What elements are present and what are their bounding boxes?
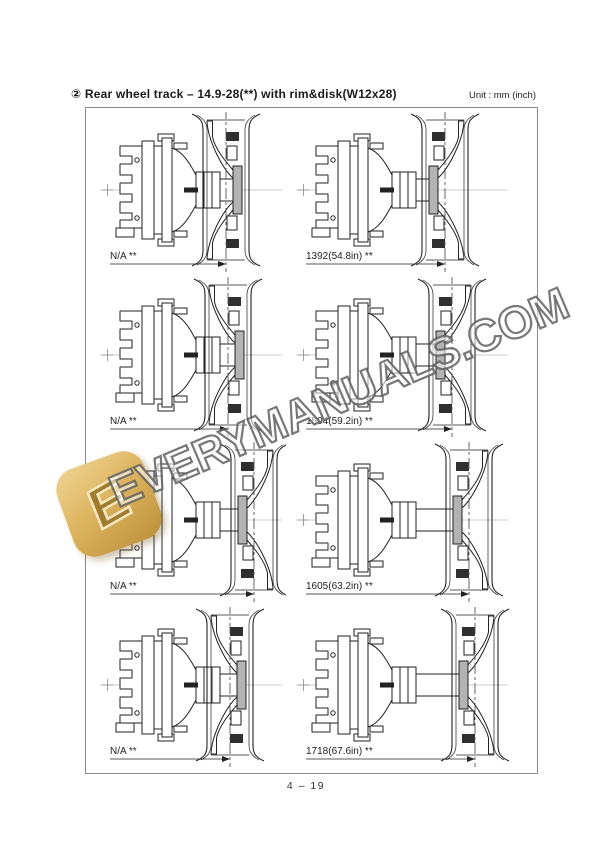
diagram-cell-6: 1605(63.2in) ** bbox=[292, 442, 512, 602]
axle-wheel-diagram: 1504(59.2in) ** bbox=[292, 277, 512, 437]
axle-wheel-diagram: 1718(67.6in) ** bbox=[292, 607, 512, 767]
diagram-cell-5: N/A ** bbox=[96, 442, 286, 602]
dimension-arrow bbox=[444, 426, 452, 432]
dimension-arrow bbox=[437, 261, 445, 267]
track-dimension-label: 1392(54.8in) ** bbox=[306, 251, 373, 262]
page-title: ② Rear wheel track – 14.9-28(**) with ri… bbox=[71, 87, 397, 101]
axle-wheel-diagram: 1605(63.2in) ** bbox=[292, 442, 512, 602]
axle-wheel-diagram: 1392(54.8in) ** bbox=[292, 112, 512, 272]
axle-wheel-diagram: N/A ** bbox=[96, 277, 286, 437]
track-dimension-label: 1605(63.2in) ** bbox=[306, 581, 373, 592]
dimension-arrow bbox=[467, 756, 475, 762]
dimension-arrow bbox=[461, 591, 469, 597]
axle-wheel-diagram: N/A ** bbox=[96, 112, 286, 272]
diagram-cell-3: N/A ** bbox=[96, 277, 286, 437]
track-dimension-label: N/A ** bbox=[110, 746, 137, 757]
dimension-arrow bbox=[246, 591, 254, 597]
track-dimension-label: N/A ** bbox=[110, 581, 137, 592]
unit-label: Unit : mm (inch) bbox=[469, 90, 536, 101]
manual-page: ② Rear wheel track – 14.9-28(**) with ri… bbox=[0, 0, 612, 864]
track-dimension-label: 1504(59.2in) ** bbox=[306, 416, 373, 427]
axle-wheel-diagram: N/A ** bbox=[96, 607, 286, 767]
track-dimension-label: 1718(67.6in) ** bbox=[306, 746, 373, 757]
diagram-cell-4: 1504(59.2in) ** bbox=[292, 277, 512, 437]
diagram-cell-7: N/A ** bbox=[96, 607, 286, 767]
dimension-arrow bbox=[222, 756, 230, 762]
diagram-cell-2: 1392(54.8in) ** bbox=[292, 112, 512, 272]
dimension-arrow bbox=[218, 261, 226, 267]
track-dimension-label: N/A ** bbox=[110, 251, 137, 262]
track-dimension-label: N/A ** bbox=[110, 416, 137, 427]
diagram-cell-8: 1718(67.6in) ** bbox=[292, 607, 512, 767]
page-number: 4 – 19 bbox=[0, 780, 612, 792]
axle-wheel-diagram: N/A ** bbox=[96, 442, 286, 602]
diagram-cell-1: N/A ** bbox=[96, 112, 286, 272]
dimension-arrow bbox=[220, 426, 228, 432]
